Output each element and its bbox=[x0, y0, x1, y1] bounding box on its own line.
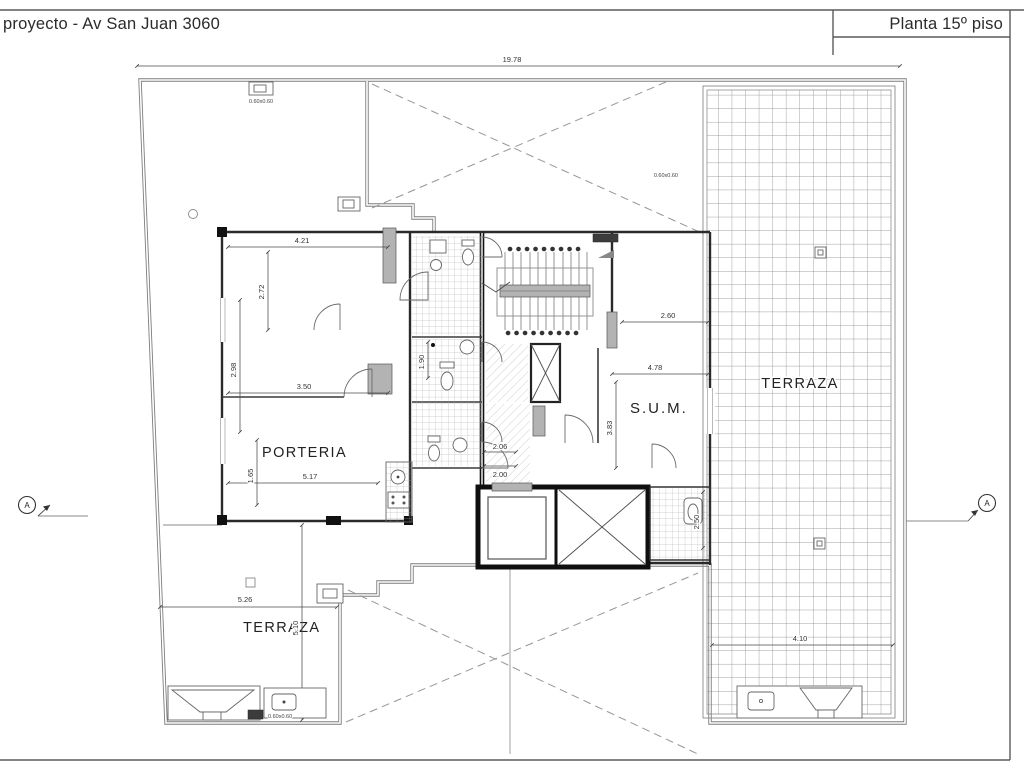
dim-sum-width: 4.78 bbox=[648, 363, 663, 372]
stove bbox=[388, 492, 409, 508]
dim-hall-c: 1.90 bbox=[417, 355, 426, 370]
window-west-1 bbox=[218, 298, 226, 342]
drawing-sheet: proyecto - Av San Juan 3060 Planta 15º p… bbox=[0, 0, 1024, 768]
dim-terraza-right-width: 4.10 bbox=[793, 634, 808, 643]
sink-2 bbox=[453, 438, 467, 452]
dim-sum-depth: 3.83 bbox=[605, 421, 614, 436]
drain-label-right: 0.60x0.60 bbox=[654, 173, 678, 179]
dim-bath-depth: 2.50 bbox=[692, 515, 701, 530]
bidet-icon bbox=[431, 260, 442, 271]
floor-plan-svg: proyecto - Av San Juan 3060 Planta 15º p… bbox=[0, 0, 1024, 768]
elevator-upper bbox=[531, 344, 560, 436]
section-marker-right: A bbox=[906, 495, 996, 522]
machine-room bbox=[488, 497, 546, 559]
lintel-stair bbox=[593, 234, 618, 242]
dim-hall-b: 2.00 bbox=[493, 470, 508, 479]
room-label-sum: S.U.M. bbox=[630, 400, 688, 417]
room-label-porteria: PORTERIA bbox=[262, 445, 347, 461]
toilet-2 bbox=[440, 362, 454, 390]
drain-label-topleft: 0.60x0.60 bbox=[249, 99, 273, 105]
roof-upper-left: 0.60x0.60 bbox=[189, 82, 361, 219]
drain-label-bottom: 0.60x0.60 bbox=[268, 714, 292, 720]
dim-porteria-width: 5.17 bbox=[303, 472, 318, 481]
pier-porteria-ne bbox=[383, 228, 396, 283]
room-label-terraza-bottom: TERRAZA bbox=[243, 620, 320, 636]
section-letter-right: A bbox=[984, 499, 990, 508]
dim-total-width: 19.78 bbox=[503, 55, 522, 64]
terraza-right-drains bbox=[737, 686, 862, 718]
terraza-right: TERRAZA 0.60x0.60 4.10 bbox=[654, 86, 895, 718]
bathrooms bbox=[412, 236, 482, 466]
machine-room-block bbox=[478, 483, 648, 567]
window-sum-east bbox=[705, 388, 715, 434]
section-letter-left: A bbox=[24, 501, 30, 510]
void-cross-upper bbox=[372, 82, 704, 234]
project-title: proyecto - Av San Juan 3060 bbox=[3, 15, 220, 33]
overall-dimension: 19.78 bbox=[137, 55, 900, 66]
sheet-title: Planta 15º piso bbox=[889, 15, 1003, 33]
room-label-terraza-right: TERRAZA bbox=[761, 376, 838, 392]
dim-sum-east: 2.60 bbox=[661, 311, 676, 320]
dim-terraza-bottom-width: 5.26 bbox=[238, 595, 253, 604]
dim-bedroom-depth: 2.72 bbox=[257, 285, 266, 300]
bath-se bbox=[650, 487, 710, 560]
section-marker-left: A bbox=[19, 497, 89, 517]
toilet-3 bbox=[428, 436, 440, 461]
dim-living-width: 3.50 bbox=[297, 382, 312, 391]
kitchen-porteria bbox=[386, 462, 412, 522]
dim-living-depth: 2.98 bbox=[229, 363, 238, 378]
dim-bedroom-width: 4.21 bbox=[295, 236, 310, 245]
toilet-1 bbox=[462, 240, 474, 265]
staircase bbox=[482, 249, 614, 333]
terraza-bottom: TERRAZA 5.26 5.10 0.60x0.60 bbox=[160, 525, 510, 754]
window-west-2 bbox=[218, 418, 226, 464]
drain-dot bbox=[431, 343, 435, 347]
terraza-bottom-drains: 0.60x0.60 bbox=[168, 686, 326, 720]
washbasin-counter bbox=[430, 240, 446, 253]
dim-terraza-bottom-depth: 5.10 bbox=[291, 621, 300, 636]
void-cross-lower bbox=[346, 573, 700, 755]
sink-1 bbox=[460, 340, 474, 354]
pier-sum-west bbox=[607, 312, 617, 348]
dim-porteria-niche: 1.65 bbox=[246, 469, 255, 484]
dim-hall-a: 2.06 bbox=[493, 442, 508, 451]
